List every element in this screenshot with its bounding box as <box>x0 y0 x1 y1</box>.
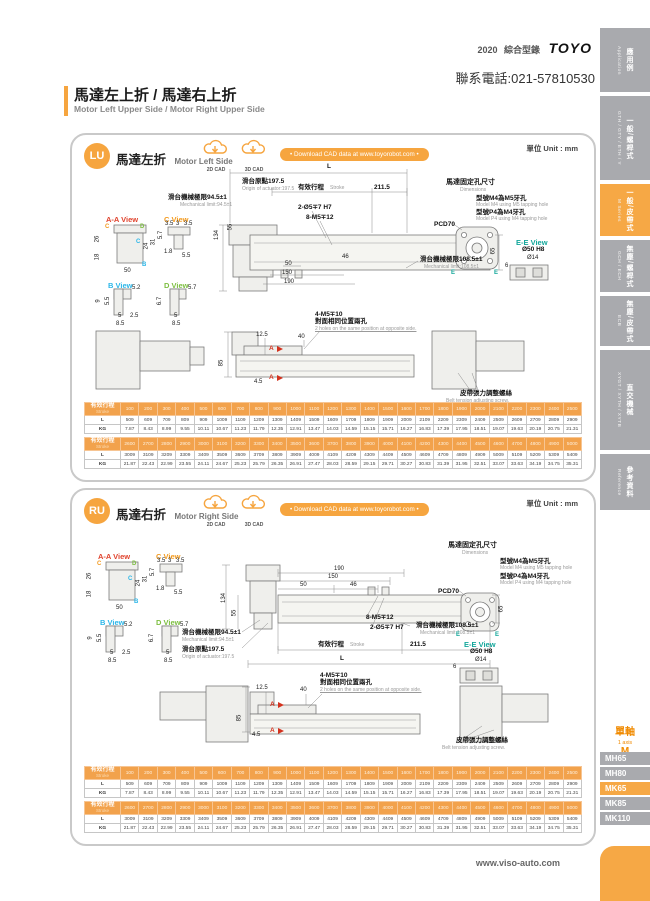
table-cell: 14.59 <box>342 789 360 798</box>
dim-c-57: 5.7 <box>150 568 156 576</box>
section-badge-ru: RU <box>84 498 110 524</box>
table-cell: 1309 <box>268 780 286 789</box>
table-cell: 4409 <box>379 451 397 460</box>
table-cell: 9.55 <box>176 425 194 434</box>
stroke-table-block2: 有效行程 Stroke 2600270028002900300031003200… <box>84 437 582 469</box>
ee-dim-50h8: Ø50 H8 <box>470 649 492 656</box>
table-cell: 509 <box>121 416 139 425</box>
tab-zh-label: 直交機械 <box>624 384 634 416</box>
table-cell: 700 <box>231 403 249 416</box>
sidebar-tab-reference[interactable]: Reference 參考資料 <box>600 454 650 510</box>
table-cell: 21.87 <box>121 460 139 469</box>
table-cell: 8.43 <box>139 789 157 798</box>
sidebar-tab-screw-general[interactable]: GTH / GTY / ETH / Y 一般/螺桿式 <box>600 96 650 180</box>
contact-phone: 聯系電話:021-57810530 <box>456 68 595 87</box>
toyo-logo: TOYO <box>549 40 592 56</box>
tab-en-label: GCH / ECH <box>616 251 621 280</box>
dim-65: 65 <box>490 248 496 255</box>
table-cell: 11.79 <box>250 425 268 434</box>
table-cell: 2900 <box>176 802 194 815</box>
table-cell: 1909 <box>379 780 397 789</box>
table-cell: 1009 <box>213 416 231 425</box>
table-cell: 4300 <box>434 438 452 451</box>
table-cell: 25.79 <box>250 460 268 469</box>
table-cell: 709 <box>157 780 175 789</box>
section-motor-right: RU 馬達右折 Motor Right Side 2D CAD 3D CAD •… <box>70 488 596 846</box>
dim-b-52: 5.2 <box>124 622 132 628</box>
table-cell: 1500 <box>379 767 397 780</box>
view-title-aa: A-A View <box>106 215 138 224</box>
table-cell: 4800 <box>526 438 544 451</box>
dim-c-18: 1.8 <box>156 586 164 592</box>
table-cell: 400 <box>176 767 194 780</box>
origin-label-zh: 滑台原點197.5 <box>242 179 284 186</box>
table-cell: 22.99 <box>157 460 175 469</box>
table-cell: 2400 <box>545 403 563 416</box>
table-cell: 4400 <box>452 802 470 815</box>
cad-3d-label: 3D CAD <box>245 522 264 528</box>
section-title-zh: 馬達左折 <box>116 153 166 167</box>
dim-d-5: 5 <box>174 313 177 319</box>
table-cell: 17.95 <box>452 789 470 798</box>
cloud-download-icon <box>202 138 230 158</box>
table-cell: 29.71 <box>379 824 397 833</box>
table-cell: 28.03 <box>323 824 341 833</box>
table-cell: 28.59 <box>342 460 360 469</box>
table-cell: 1409 <box>286 416 304 425</box>
table-cell: 34.75 <box>545 824 563 833</box>
dim-d-57: 5.7 <box>180 622 188 628</box>
pcd-label: PCD70 <box>434 222 455 229</box>
length-row: L 30093109320933093409350936093709380939… <box>85 451 582 460</box>
dim-55: 55 <box>227 224 233 231</box>
row-label-kg: KG <box>85 460 121 469</box>
table-cell: 16.83 <box>416 789 434 798</box>
dim-125: 12.5 <box>256 685 268 691</box>
table-cell: 3600 <box>305 438 323 451</box>
table-cell: 3800 <box>342 438 360 451</box>
table-cell: 4500 <box>471 802 489 815</box>
table-cell: 200 <box>139 403 157 416</box>
table-cell: 3700 <box>323 438 341 451</box>
dim-85: 85 <box>218 360 224 367</box>
table-cell: 4100 <box>397 802 415 815</box>
tab-en-label: M Series <box>616 199 621 222</box>
download-cad-pill[interactable]: • Download CAD data at www.toyorobot.com… <box>280 148 429 161</box>
dim-c-35b: 3.5 <box>184 221 192 227</box>
dim-d-57: 5.7 <box>188 285 196 291</box>
mech-low-en: Mechanical limit:94.5±1 <box>180 203 232 208</box>
table-cell: 909 <box>194 416 212 425</box>
dim-c-55: 5.5 <box>182 253 190 259</box>
dim-190: 190 <box>284 279 294 285</box>
dim-134: 134 <box>214 230 220 240</box>
tab-zh-label: 應用例 <box>624 48 634 72</box>
dim-aa-31: 31 <box>142 576 148 583</box>
table-cell: 809 <box>176 780 194 789</box>
table-cell: 19.07 <box>489 425 507 434</box>
table-cell: 33.63 <box>508 824 526 833</box>
table-cell: 4309 <box>360 451 378 460</box>
dim-c-3: 3 <box>168 558 171 564</box>
table-cell: 1809 <box>360 780 378 789</box>
stroke-header-en: Stroke <box>85 809 120 814</box>
table-cell: 800 <box>250 403 268 416</box>
cad-2d-button[interactable]: 2D CAD <box>200 138 232 176</box>
cloud-download-icon <box>202 493 230 513</box>
section-motor-left: LU 馬達左折 Motor Left Side 2D CAD 3D CAD • … <box>70 133 596 482</box>
m4-note-en: Model M4 using M5 tapping hole <box>500 566 572 571</box>
table-cell: 2809 <box>545 780 563 789</box>
tap4-note-zh: 對面相同位置兩孔 <box>315 319 367 326</box>
table-cell: 4709 <box>434 451 452 460</box>
table-cell: 600 <box>213 767 231 780</box>
row-label-kg: KG <box>85 824 121 833</box>
dim-50: 50 <box>300 582 307 588</box>
dim-b-9: 9 <box>88 636 94 639</box>
unit-label: 單位 Unit : mm <box>526 498 578 509</box>
dim-50: 50 <box>285 261 292 267</box>
table-cell: 1309 <box>268 416 286 425</box>
length-row: L 50960970980990910091109120913091409150… <box>85 780 582 789</box>
table-cell: 8.99 <box>157 425 175 434</box>
e-marker-right: E <box>494 270 498 276</box>
page-subtitle: Motor Left Upper Side / Motor Right Uppe… <box>74 104 265 114</box>
marker-c: C <box>97 561 101 567</box>
length-row: L 30093109320933093409350936093709380939… <box>85 815 582 824</box>
marker-d: D <box>132 561 136 567</box>
table-cell: 2509 <box>489 416 507 425</box>
stroke-header-cell: 有效行程 Stroke <box>85 403 121 416</box>
row-label-kg: KG <box>85 425 121 434</box>
table-cell: 20.19 <box>526 425 544 434</box>
stroke-header-cell: 有效行程 Stroke <box>85 802 121 815</box>
table-cell: 3609 <box>231 815 249 824</box>
table-cell: 31.39 <box>434 460 452 469</box>
weight-row: KG 7.878.438.999.5510.1110.6711.2311.791… <box>85 425 582 434</box>
stroke-header-cell: 有效行程 Stroke <box>85 438 121 451</box>
table-cell: 4700 <box>508 802 526 815</box>
table-cell: 3109 <box>139 815 157 824</box>
website-link[interactable]: www.viso-auto.com <box>476 858 560 868</box>
motor-hole-title-zh: 馬達固定孔尺寸 <box>448 542 497 549</box>
table-cell: 31.95 <box>452 824 470 833</box>
table-cell: 34.19 <box>526 824 544 833</box>
table-cell: 33.63 <box>508 460 526 469</box>
table-cell: 1609 <box>323 416 341 425</box>
table-cell: 4909 <box>471 451 489 460</box>
table-cell: 3309 <box>176 451 194 460</box>
table-cell: 20.75 <box>545 425 563 434</box>
mech-low-en: Mechanical limit:94.5±1 <box>182 638 234 643</box>
table-cell: 7.87 <box>121 789 139 798</box>
table-cell: 17.39 <box>434 789 452 798</box>
table-cell: 25.79 <box>250 824 268 833</box>
table-cell: 4509 <box>397 451 415 460</box>
dim-c-3: 3 <box>176 221 179 227</box>
table-cell: 3900 <box>360 438 378 451</box>
row-label-l: L <box>85 780 121 789</box>
table-cell: 1400 <box>360 767 378 780</box>
table-cell: 24.67 <box>213 460 231 469</box>
table-cell: 21.87 <box>121 824 139 833</box>
origin-label-en: Origin of actuator:197.5 <box>182 655 234 660</box>
table-cell: 33.07 <box>489 824 507 833</box>
table-cell: 3709 <box>250 815 268 824</box>
table-cell: 3700 <box>323 802 341 815</box>
table-cell: 3809 <box>268 451 286 460</box>
tap4-note-en: 2 holes on the same position at opposite… <box>320 688 421 693</box>
table-cell: 12.35 <box>268 789 286 798</box>
cad-2d-button[interactable]: 2D CAD <box>200 493 232 531</box>
tap-holes-note: 8-M5∓12 <box>366 615 394 622</box>
stroke-header-row: 有效行程 Stroke 1002003004005006007008009001… <box>85 403 582 416</box>
stroke-label-zh: 有效行程 <box>298 185 324 192</box>
table-cell: 2409 <box>471 780 489 789</box>
table-cell: 1400 <box>360 403 378 416</box>
dim-d-67: 6.7 <box>157 297 163 305</box>
table-cell: 1509 <box>305 780 323 789</box>
table-cell: 400 <box>176 403 194 416</box>
table-cell: 32.51 <box>471 824 489 833</box>
sidebar-tab-cleanroom-screw[interactable]: GCH / ECH 無塵/螺桿式 <box>600 240 650 292</box>
table-cell: 15.71 <box>379 425 397 434</box>
table-cell: 1509 <box>305 416 323 425</box>
table-cell: 5009 <box>489 815 507 824</box>
cad-3d-button[interactable]: 3D CAD <box>238 493 270 531</box>
dim-b-55: 5.5 <box>105 297 111 305</box>
dim-aa-24: 24 <box>135 580 141 587</box>
table-cell: 3000 <box>194 438 212 451</box>
table-cell: 3300 <box>250 802 268 815</box>
dim-aa-26: 26 <box>86 573 92 580</box>
motor-hole-title-zh: 馬達固定孔尺寸 <box>446 179 495 186</box>
table-cell: 1900 <box>452 767 470 780</box>
p4-note-en: Model P4 using M4 tapping hole <box>476 217 547 222</box>
table-cell: 11.23 <box>231 425 249 434</box>
p4-note-en: Model P4 using M4 tapping hole <box>500 581 571 586</box>
table-cell: 1209 <box>250 416 268 425</box>
section-arrow-a2: A <box>269 375 274 382</box>
table-cell: 2500 <box>563 767 582 780</box>
dim-c-35a: 3.5 <box>165 221 173 227</box>
model-item-mh65[interactable]: MH65 <box>600 752 650 765</box>
section-badge-lu: LU <box>84 143 110 169</box>
tab-zh-label: 一般/皮帶式 <box>624 189 634 232</box>
tab-en-label: GTH / GTY / ETH / Y <box>616 111 621 165</box>
table-cell: 4000 <box>379 438 397 451</box>
table-cell: 2709 <box>526 780 544 789</box>
dim-b-55: 5.5 <box>97 634 103 642</box>
stroke-tables-lu: 有效行程 Stroke 1002003004005006007008009001… <box>84 402 582 472</box>
tab-zh-label: 無塵/皮帶式 <box>624 300 634 343</box>
dim-b-85: 8.5 <box>116 321 124 327</box>
view-title-b: B View <box>100 618 124 627</box>
row-label-kg: KG <box>85 789 121 798</box>
dim-65: 65 <box>498 606 504 613</box>
view-title-aa: A-A View <box>98 552 130 561</box>
table-cell: 5109 <box>508 451 526 460</box>
table-cell: 15.15 <box>360 425 378 434</box>
dim-aa-18: 18 <box>94 254 100 261</box>
table-cell: 33.07 <box>489 460 507 469</box>
dim-45: 4.5 <box>252 732 260 738</box>
table-cell: 1300 <box>342 767 360 780</box>
mech-high-zh: 滑台機械極限108.5±1 <box>420 257 482 264</box>
table-cell: 1109 <box>231 416 249 425</box>
cad-2d-label: 2D CAD <box>207 522 226 528</box>
tab-zh-label: 一般/螺桿式 <box>624 117 634 160</box>
dim-b-25: 2.5 <box>130 313 138 319</box>
dim-d-85: 8.5 <box>164 658 172 664</box>
stroke-header-row: 有效行程 Stroke 2600270028002900300031003200… <box>85 438 582 451</box>
table-cell: 3600 <box>305 802 323 815</box>
sidebar-tab-cleanroom-belt[interactable]: ECB 無塵/皮帶式 <box>600 296 650 346</box>
table-cell: 1600 <box>397 403 415 416</box>
stroke-header-cell: 有效行程 Stroke <box>85 767 121 780</box>
table-cell: 2000 <box>471 403 489 416</box>
table-cell: 10.67 <box>213 789 231 798</box>
table-cell: 2909 <box>563 780 582 789</box>
model-item-mk110[interactable]: MK110 <box>600 812 650 825</box>
table-cell: 3609 <box>231 451 249 460</box>
tab-en-label: ECB <box>616 315 621 326</box>
stroke-header-row: 有效行程 Stroke 2600270028002900300031003200… <box>85 802 582 815</box>
table-cell: 25.23 <box>231 460 249 469</box>
cad-2d-label: 2D CAD <box>207 167 226 173</box>
table-cell: 4800 <box>526 802 544 815</box>
sidebar-tab-application[interactable]: Application 應用例 <box>600 28 650 92</box>
table-cell: 10.11 <box>194 789 212 798</box>
sidebar-tab-cartesian[interactable]: XYGT / XYTH / XYTB 直交機械 <box>600 350 650 450</box>
table-cell: 24.11 <box>194 824 212 833</box>
table-cell: 4300 <box>434 802 452 815</box>
dim-c-35b: 3.5 <box>176 558 184 564</box>
table-cell: 3200 <box>231 438 249 451</box>
model-item-mk65[interactable]: MK65 <box>600 782 650 795</box>
section-arrow-a1: A <box>270 702 275 709</box>
cad-3d-button[interactable]: 3D CAD <box>238 138 270 176</box>
table-cell: 300 <box>157 767 175 780</box>
table-cell: 26.35 <box>268 824 286 833</box>
table-cell: 2200 <box>508 403 526 416</box>
table-cell: 3409 <box>194 815 212 824</box>
ee-dim-50h8: Ø50 H8 <box>522 247 544 254</box>
table-cell: 17.95 <box>452 425 470 434</box>
table-cell: 4200 <box>416 802 434 815</box>
table-cell: 2600 <box>121 802 139 815</box>
tap4-note-en: 2 holes on the same position at opposite… <box>315 327 416 332</box>
dim-134: 134 <box>221 593 227 603</box>
table-cell: 4709 <box>434 815 452 824</box>
table-cell: 5009 <box>489 451 507 460</box>
table-cell: 5109 <box>508 815 526 824</box>
table-cell: 16.27 <box>397 425 415 434</box>
table-cell: 11.79 <box>250 789 268 798</box>
catalog-name: 綜合型錄 <box>504 45 540 55</box>
view-title-d: D View <box>156 618 180 627</box>
table-cell: 2300 <box>526 767 544 780</box>
e-marker-left: E <box>451 270 455 276</box>
table-cell: 3909 <box>286 451 304 460</box>
table-cell: 5209 <box>526 815 544 824</box>
stroke-tables-ru: 有效行程 Stroke 1002003004005006007008009001… <box>84 766 582 836</box>
dim-c-35a: 3.5 <box>157 558 165 564</box>
table-cell: 700 <box>231 767 249 780</box>
table-cell: 1900 <box>452 403 470 416</box>
cad-3d-label: 3D CAD <box>245 167 264 173</box>
table-cell: 9.55 <box>176 789 194 798</box>
dim-46: 46 <box>350 582 357 588</box>
table-cell: 3400 <box>268 438 286 451</box>
table-cell: 4509 <box>397 815 415 824</box>
table-cell: 4209 <box>342 451 360 460</box>
table-cell: 5409 <box>563 815 582 824</box>
tab-en-label: Reference <box>616 469 621 496</box>
table-cell: 1209 <box>250 780 268 789</box>
table-cell: 2009 <box>397 780 415 789</box>
table-cell: 26.35 <box>268 460 286 469</box>
table-cell: 2100 <box>489 403 507 416</box>
table-cell: 28.03 <box>323 460 341 469</box>
table-cell: 17.39 <box>434 425 452 434</box>
table-cell: 4609 <box>416 451 434 460</box>
table-cell: 4109 <box>323 451 341 460</box>
table-cell: 18.51 <box>471 425 489 434</box>
dim-b-52: 5.2 <box>132 285 140 291</box>
table-cell: 1000 <box>286 767 304 780</box>
table-cell: 3009 <box>121 815 139 824</box>
belt-note-en: Belt tension adjusting screw. <box>442 746 505 751</box>
table-cell: 3100 <box>213 438 231 451</box>
table-cell: 29.15 <box>360 824 378 833</box>
dim-125: 12.5 <box>256 332 268 338</box>
table-cell: 1909 <box>379 416 397 425</box>
e-marker-right: E <box>495 632 499 638</box>
table-cell: 1700 <box>416 403 434 416</box>
mech-high-zh: 滑台機械極限108.5±1 <box>416 623 478 630</box>
dim-c-55: 5.5 <box>174 590 182 596</box>
model-item-mk85[interactable]: MK85 <box>600 797 650 810</box>
tap4-note-zh: 對面相同位置兩孔 <box>320 680 372 687</box>
dim-aa-50: 50 <box>124 268 131 274</box>
model-item-mh80[interactable]: MH80 <box>600 767 650 780</box>
table-cell: 2209 <box>434 416 452 425</box>
table-cell: 3709 <box>250 451 268 460</box>
table-cell: 5309 <box>545 451 563 460</box>
ee-dim-14: Ø14 <box>475 657 486 663</box>
table-cell: 3409 <box>194 451 212 460</box>
download-cad-pill[interactable]: • Download CAD data at www.toyorobot.com… <box>280 503 429 516</box>
dim-L: L <box>340 656 344 663</box>
table-cell: 1000 <box>286 403 304 416</box>
tab-en-label: XYGT / XYTH / XYTB <box>616 372 621 427</box>
table-cell: 2309 <box>452 780 470 789</box>
table-cell: 609 <box>139 416 157 425</box>
table-cell: 609 <box>139 780 157 789</box>
sidebar-tab-belt-m-series[interactable]: M Series 一般/皮帶式 <box>600 184 650 236</box>
pin-holes-note: 2-Ø5∓7 H7 <box>298 205 332 212</box>
table-cell: 4809 <box>452 815 470 824</box>
pin-holes-note: 2-Ø5∓7 H7 <box>370 625 404 632</box>
weight-row: KG 21.8722.4322.9923.5524.1124.6725.2325… <box>85 824 582 833</box>
table-cell: 12.91 <box>286 425 304 434</box>
dim-b-5: 5 <box>118 313 121 319</box>
table-cell: 1809 <box>360 416 378 425</box>
cloud-download-icon <box>240 493 268 513</box>
view-title-b: B View <box>108 281 132 290</box>
table-cell: 1200 <box>323 767 341 780</box>
